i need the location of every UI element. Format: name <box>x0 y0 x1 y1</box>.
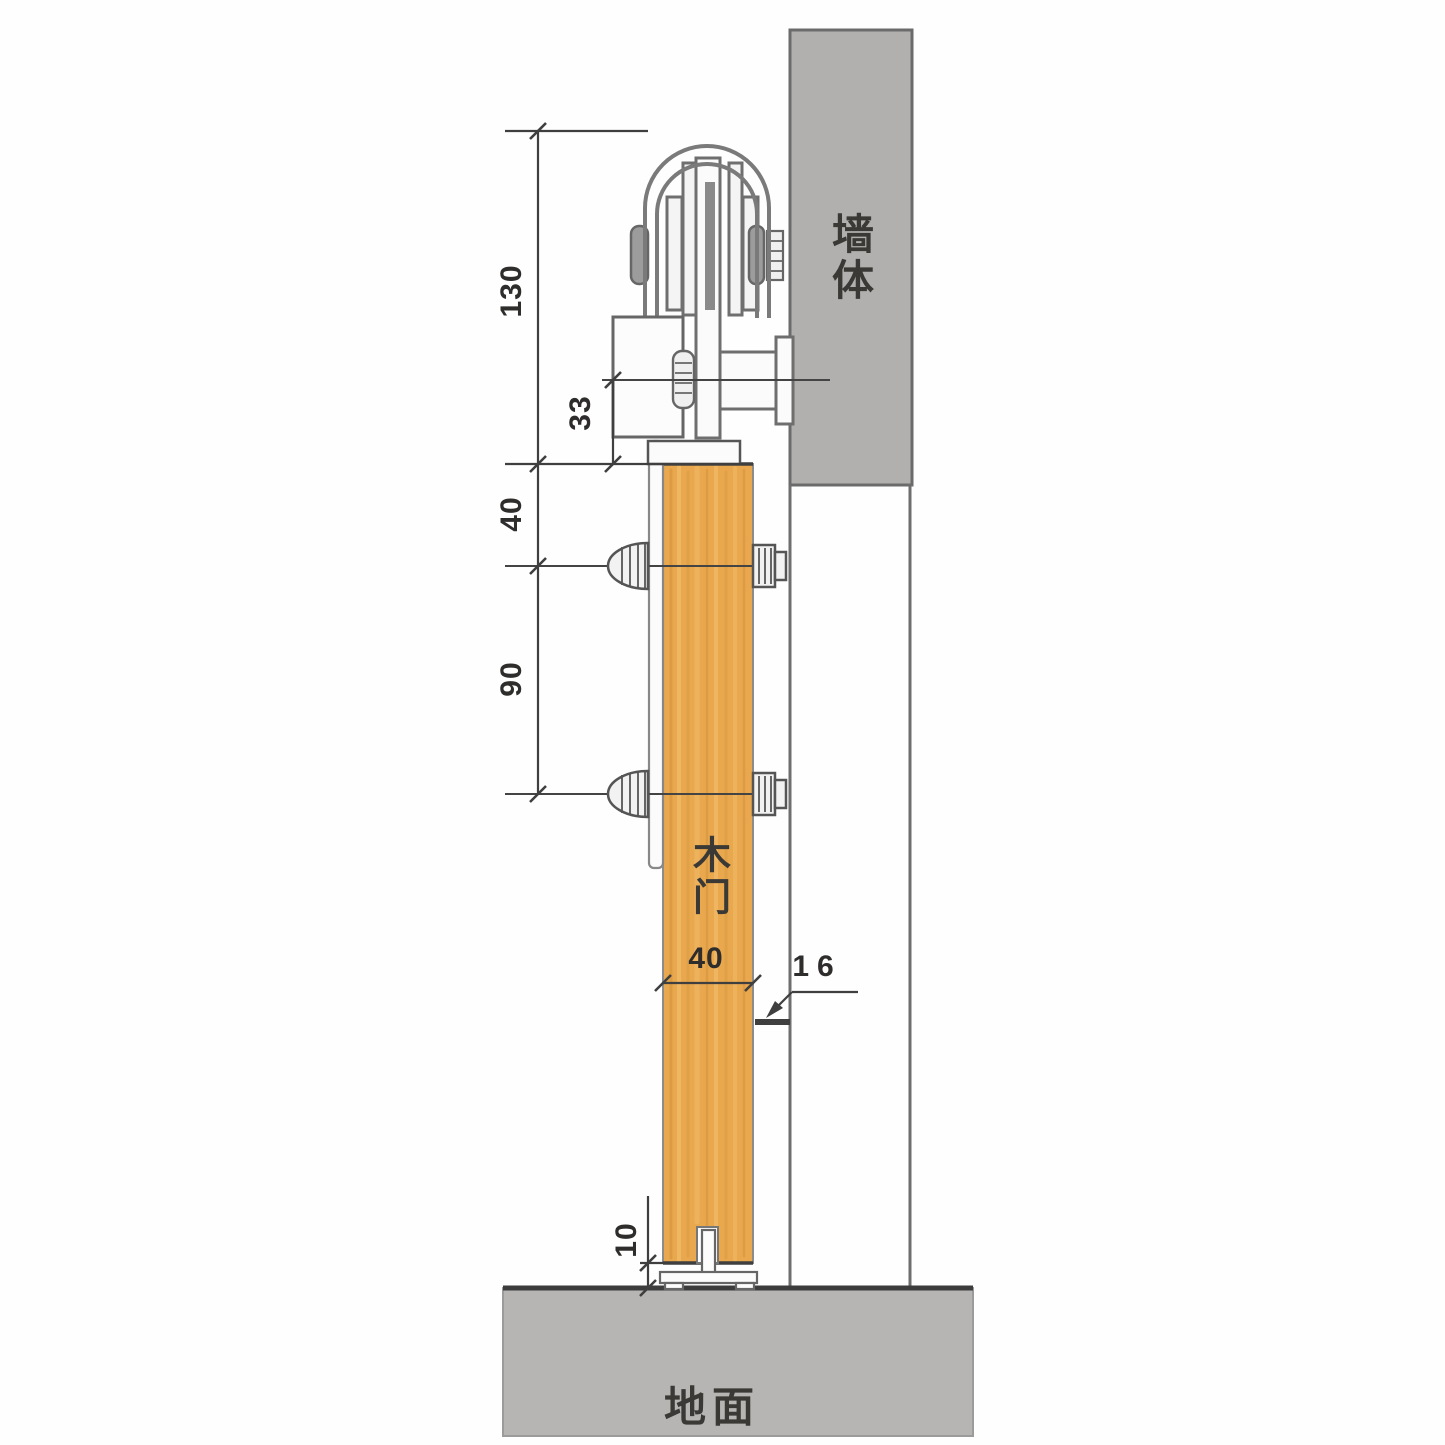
strap-plate <box>649 441 663 868</box>
bolt-dome-head <box>608 771 648 817</box>
dim-90-bolt-spacing: 90 <box>495 661 529 696</box>
wall-label: 墙体 <box>820 212 881 304</box>
floor-guide-foot-right <box>736 1283 754 1289</box>
dim-40-door-thickness: 40 <box>688 942 723 976</box>
technical-drawing-canvas: 130 33 40 90 40 16 10 墙体 木门 地面 <box>0 0 1445 1445</box>
dim-10-floor-clearance: 10 <box>610 1222 644 1257</box>
dim-16-door-wall-gap: 16 <box>792 950 841 984</box>
bolt-end-cap <box>775 552 786 580</box>
floor-guide-stem <box>702 1230 715 1273</box>
floor-guide-base <box>660 1272 757 1283</box>
door-label: 木门 <box>681 835 736 919</box>
track-bar-core <box>705 182 715 310</box>
bolt-dome-head <box>608 543 648 589</box>
floor-guide-foot-left <box>665 1283 683 1289</box>
dim-130-track-height: 130 <box>495 264 529 317</box>
door-top-plate <box>648 441 740 464</box>
dim-40-top-to-bolt: 40 <box>495 496 529 531</box>
bolt-end-cap <box>775 780 786 808</box>
floor-label: 地面 <box>664 1374 760 1435</box>
dim-33-bolt-offset: 33 <box>564 395 598 430</box>
section-drawing <box>0 0 1445 1445</box>
